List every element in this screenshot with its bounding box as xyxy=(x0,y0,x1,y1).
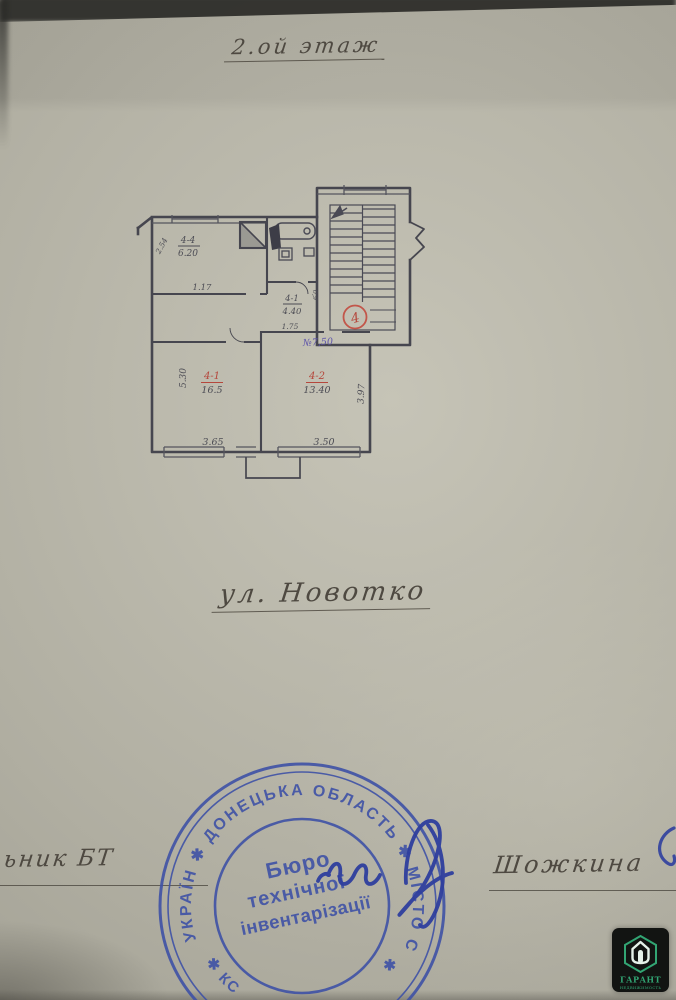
room-area: 6.20 xyxy=(178,249,198,259)
signature-stroke xyxy=(310,795,560,960)
garant-logo-graphic: ГАРАНТ НЕДВИЖИМОСТЬ xyxy=(612,928,669,992)
sink-icon xyxy=(279,248,314,260)
room-label: 4-2 xyxy=(308,371,325,382)
bathtub-icon xyxy=(275,223,315,239)
dimension-label: 0,9 xyxy=(311,290,319,300)
room-area: 4.40 xyxy=(282,307,303,317)
street-label-text: ул. Новотко xyxy=(212,576,435,613)
floor-plan: 4 2.54 4-4 6.20 1.17 4-1 4.40 1.75 0,9 №… xyxy=(128,182,438,482)
watermark-brand: ГАРАНТ xyxy=(620,975,661,985)
room-area: 16.5 xyxy=(201,385,222,396)
photo-left-edge-shadow xyxy=(0,0,8,150)
watermark-sub: НЕДВИЖИМОСТЬ xyxy=(620,985,662,990)
apartment-number: 4 xyxy=(348,310,361,328)
dimension-label: 3.97 xyxy=(356,383,367,404)
photo-top-edge-shadow xyxy=(0,0,676,22)
purple-note: №7,50 xyxy=(302,336,334,349)
apartment-number-circle: 4 xyxy=(344,306,367,329)
photo-corner-shadow xyxy=(0,920,170,1000)
signature-fragment-right xyxy=(648,820,676,880)
keyhole-icon xyxy=(638,950,643,963)
room-label: 4-1 xyxy=(203,371,220,382)
floor-title: 2.ой этаж xyxy=(224,33,387,60)
room-label: 4-1 xyxy=(284,294,299,304)
room-area: 13.40 xyxy=(303,385,330,396)
toilet-icon xyxy=(269,224,281,250)
watermark-logo: ГАРАНТ НЕДВИЖИМОСТЬ xyxy=(612,928,669,992)
dimension-label: 2.54 xyxy=(153,236,169,256)
floor-title-text: 2.ой этаж xyxy=(224,33,388,63)
street-label: ул. Новотко xyxy=(212,576,434,610)
dimension-label: 1.75 xyxy=(282,322,299,331)
balcony-outline xyxy=(246,457,300,478)
dimension-label: 3.65 xyxy=(202,437,223,448)
outer-walls xyxy=(138,188,424,452)
stairwell xyxy=(330,205,396,330)
room-label: 4-4 xyxy=(180,236,196,246)
svg-text:✱ КС: ✱ КС xyxy=(202,955,243,998)
vent-shaft xyxy=(240,222,266,248)
scanned-document-photo: 2.ой этаж xyxy=(0,0,676,1000)
stamp-arc-bottom-left-text: ✱ КС xyxy=(202,955,243,998)
dimension-label: 5.30 xyxy=(179,368,189,388)
dimension-label: 1.17 xyxy=(193,283,213,293)
dimension-label: 3.50 xyxy=(313,437,334,448)
left-signature-label: ьник БТ xyxy=(2,845,115,873)
